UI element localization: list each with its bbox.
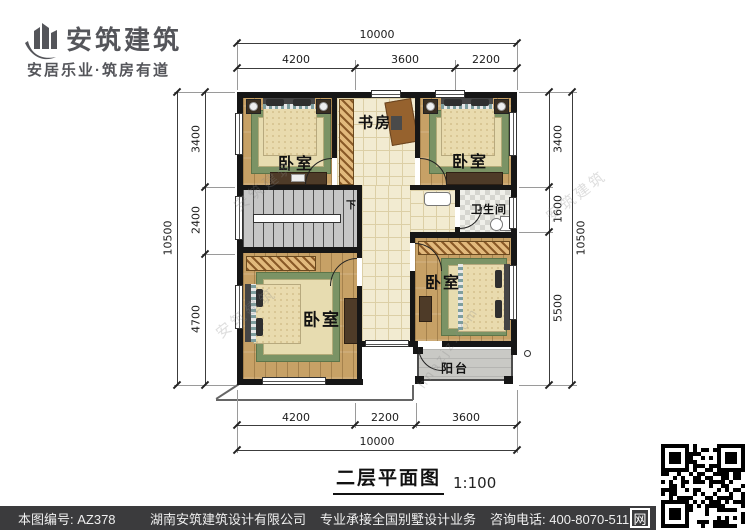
nightstand: [423, 99, 438, 114]
bedroom-tr-label: 卧室: [452, 148, 488, 172]
balcony-label: 阳台: [441, 360, 469, 377]
company-name: 湖南安筑建筑设计有限公司: [150, 509, 306, 528]
wall: [410, 232, 517, 238]
window: [509, 197, 517, 229]
wall: [332, 92, 337, 158]
dim-right-seg1: 3400: [552, 125, 565, 153]
phone-text: 咨询电话: 400-8070-511: [490, 509, 629, 528]
pillow: [256, 289, 263, 307]
brand-tagline: 安居乐业·筑房有道: [27, 59, 170, 80]
stair-down-label: 下: [346, 197, 356, 212]
dim-bottom-seg3: 3600: [452, 411, 480, 424]
pillow: [495, 270, 502, 288]
dim-left-seg1: 3400: [190, 125, 203, 153]
nightstand: [316, 99, 331, 114]
dim-top-seg2: 3600: [391, 53, 419, 66]
window: [509, 112, 517, 156]
footer-info: 湖南安筑建筑设计有限公司 专业承接全国别墅设计业务 咨询电话: 400-8070…: [150, 506, 629, 530]
dresser: [446, 172, 503, 185]
extension-line: [202, 254, 235, 255]
qr-grid: [661, 444, 745, 528]
window: [235, 285, 243, 329]
dimension-line: [237, 450, 517, 451]
corridor-floor: [362, 185, 410, 341]
qr-finder: [661, 444, 689, 472]
washbasin: [424, 192, 451, 206]
wall: [410, 185, 517, 190]
balcony-post: [504, 376, 513, 384]
roof-outline: [216, 399, 413, 401]
qr-finder: [661, 500, 689, 528]
dim-bottom-total: 10000: [360, 435, 395, 448]
window: [509, 265, 517, 320]
dim-left-seg2: 2400: [190, 206, 203, 234]
nightstand: [246, 99, 261, 114]
pillow: [256, 318, 263, 336]
wall: [357, 286, 362, 385]
wall: [357, 190, 362, 253]
wall: [455, 190, 460, 207]
balcony-post: [511, 347, 517, 355]
window: [235, 113, 243, 155]
window: [235, 196, 243, 240]
drawing-number: 本图编号: AZ378: [18, 506, 116, 530]
dimension-line: [205, 92, 206, 385]
brand-name: 安筑建筑: [66, 20, 182, 57]
bed: [263, 108, 317, 156]
qr-code: [656, 441, 750, 530]
roof-outline: [412, 385, 414, 400]
dim-bottom-seg2: 2200: [371, 411, 399, 424]
pillow: [495, 300, 502, 318]
dimension-line: [572, 92, 573, 385]
nightstand: [494, 99, 509, 114]
qr-finder: [717, 444, 745, 472]
bedroom-bl-label: 卧室: [303, 306, 341, 331]
wall: [237, 185, 362, 190]
pillow: [266, 99, 284, 106]
pillow: [293, 99, 311, 106]
bedroom-tl-label: 卧室: [278, 150, 314, 174]
pillow: [471, 99, 489, 106]
bookshelf: [339, 99, 354, 185]
dim-bottom-seg1: 4200: [282, 411, 310, 424]
computer: [391, 116, 402, 130]
wall: [237, 247, 362, 253]
web-badge: 网: [630, 508, 650, 528]
drain-pipe: [524, 350, 531, 357]
study-label: 书房: [358, 112, 392, 133]
dim-top-seg3: 2200: [472, 53, 500, 66]
window: [371, 90, 401, 98]
dim-left-total: 10500: [162, 221, 175, 256]
dim-right-seg3: 5500: [552, 294, 565, 322]
wall: [357, 253, 362, 258]
dimension-line: [177, 92, 178, 385]
window: [435, 90, 465, 98]
stair-rail: [253, 214, 341, 223]
desk: [344, 298, 358, 344]
drawing-title-block: 二层平面图 1:100: [333, 463, 496, 495]
dim-right-seg2: 1600: [552, 195, 565, 223]
wall: [415, 92, 420, 158]
service-text: 专业承接全国别墅设计业务: [320, 509, 476, 528]
page: 安筑建筑 安居乐业·筑房有道: [0, 0, 750, 530]
dimension-line: [237, 68, 517, 69]
pillow: [444, 99, 462, 106]
wall: [442, 341, 517, 347]
bathroom-label: 卫生间: [471, 201, 507, 217]
wall: [410, 271, 415, 341]
stool: [419, 296, 432, 322]
dimension-line: [237, 425, 517, 426]
dim-left-seg3: 4700: [190, 305, 203, 333]
drawing-scale: 1:100: [453, 474, 496, 495]
extension-line: [202, 187, 235, 188]
dim-top-total: 10000: [360, 28, 395, 41]
toilet-bowl: [490, 218, 503, 231]
dresser-knob: [291, 174, 305, 182]
dimension-line: [549, 92, 550, 385]
window: [365, 340, 409, 347]
window: [262, 377, 326, 385]
dim-top-seg1: 4200: [282, 53, 310, 66]
dimension-line: [237, 43, 517, 44]
dim-right-total: 10500: [575, 221, 588, 256]
wardrobe: [246, 256, 316, 271]
drawing-title: 二层平面图: [333, 463, 444, 495]
bedroom-br-label: 卧室: [425, 269, 461, 293]
brand-logo-icon: [24, 16, 66, 62]
balcony-post: [415, 376, 424, 384]
